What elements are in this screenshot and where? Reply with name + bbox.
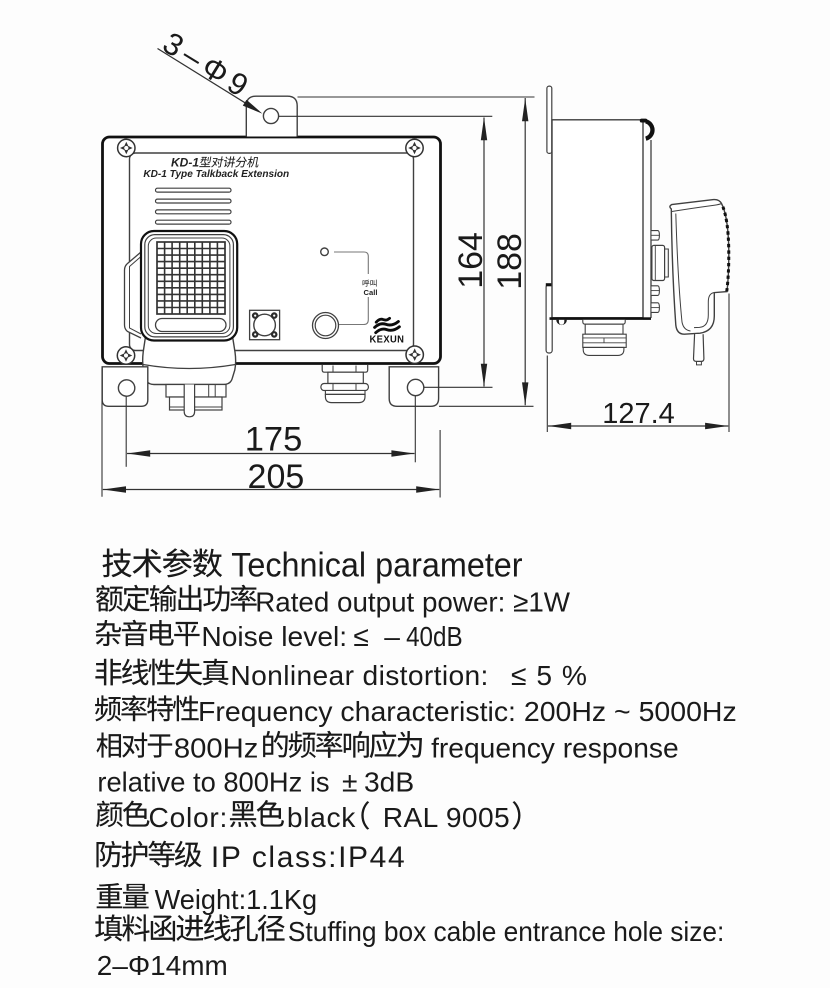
svg-text:175: 175 xyxy=(245,420,303,458)
svg-text:≤: ≤ xyxy=(353,620,368,652)
svg-text:800Hz: 800Hz xyxy=(174,732,259,764)
svg-text:IP class:IP44: IP class:IP44 xyxy=(211,841,406,874)
svg-text:black: black xyxy=(287,801,356,833)
svg-text:2–Φ14mm: 2–Φ14mm xyxy=(97,949,228,981)
svg-text:KD-1 Type Talkback Extension: KD-1 Type Talkback Extension xyxy=(143,169,289,180)
svg-text:frequency response: frequency response xyxy=(431,732,679,764)
svg-text:KD-1: KD-1 xyxy=(171,156,199,170)
svg-text:3dB: 3dB xyxy=(364,766,414,798)
svg-text:Call: Call xyxy=(364,288,378,297)
svg-text:RAL 9005: RAL 9005 xyxy=(383,801,510,833)
svg-text:188: 188 xyxy=(491,233,529,290)
svg-text:relative to 800Hz is: relative to 800Hz is xyxy=(97,766,329,798)
svg-text:Nonlinear distortion:: Nonlinear distortion: xyxy=(230,659,488,691)
svg-text:Stuffing box cable entrance ho: Stuffing box cable entrance hole size: xyxy=(288,915,724,947)
svg-text:205: 205 xyxy=(248,458,305,496)
svg-text:±: ± xyxy=(342,766,357,798)
svg-text:Weight:1.1Kg: Weight:1.1Kg xyxy=(155,883,318,915)
svg-text:Color:: Color: xyxy=(149,801,228,833)
svg-text:KEXUN: KEXUN xyxy=(370,334,405,345)
svg-text:127.4: 127.4 xyxy=(602,398,675,430)
svg-text:40dB: 40dB xyxy=(406,620,463,652)
svg-text:≤5%: ≤5% xyxy=(511,659,587,691)
svg-text:Noise level:: Noise level: xyxy=(201,620,347,652)
svg-text:Frequency characteristic: 200H: Frequency characteristic: 200Hz ~ 5000Hz xyxy=(198,695,737,727)
svg-text:–: – xyxy=(384,620,400,652)
svg-text:164: 164 xyxy=(452,232,490,289)
svg-text:Technical parameter: Technical parameter xyxy=(231,546,522,584)
svg-text:Rated output power: ≥1W: Rated output power: ≥1W xyxy=(255,585,570,617)
